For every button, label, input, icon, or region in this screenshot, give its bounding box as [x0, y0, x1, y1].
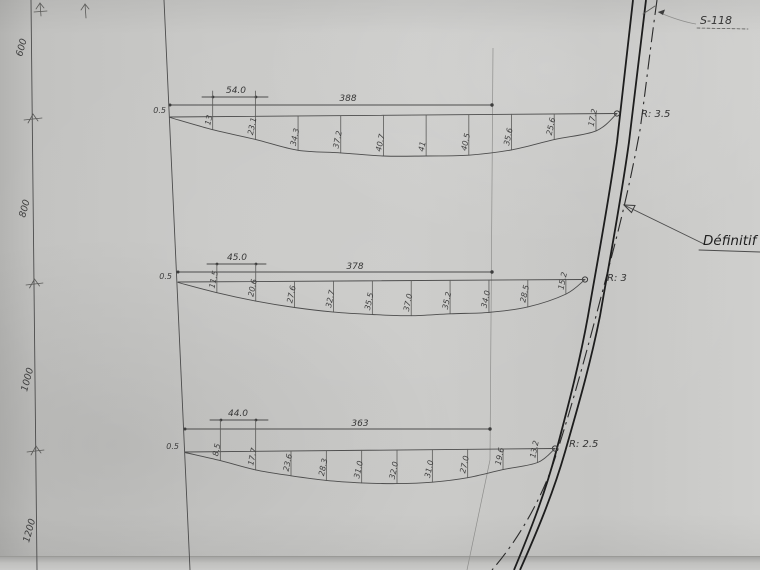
- edge-double-line: [514, 0, 646, 570]
- offset-value-label: 31.0: [423, 459, 436, 478]
- reference-leader-line: [658, 12, 696, 24]
- status-note: Définitif: [624, 205, 760, 252]
- status-note-underline: [699, 250, 760, 252]
- offset-value-label: 34.3: [289, 127, 302, 146]
- status-leader-line: [626, 206, 704, 244]
- span-dim-text-1: 388: [339, 94, 356, 104]
- offset-value-label: 27.6: [285, 285, 298, 304]
- spacing-dim-text-3: 44.0: [228, 409, 248, 419]
- sheet-reference-underline: [697, 28, 748, 29]
- datum-mark-1: [40, 3, 41, 16]
- offset-value-label: 31.0: [352, 460, 365, 479]
- span-dim-end-dot: [490, 270, 493, 273]
- offset-value-label: 37.2: [331, 130, 344, 149]
- offset-value-label: 32.7: [324, 288, 337, 308]
- offset-value-label: 17.7: [246, 446, 259, 466]
- offset-value-label: 20.6: [246, 278, 259, 297]
- ruler-label-600: 600: [14, 37, 29, 57]
- photo-of-drawing: 600 800 1000 1200 S-118: [0, 0, 760, 570]
- offset-value-label: 28.3: [317, 457, 330, 476]
- chord-line: [178, 280, 585, 283]
- ruler-tick-2: [26, 283, 43, 285]
- radius-text-2: R: 3: [607, 273, 627, 284]
- spacing-dim-text-1: 54.0: [226, 86, 246, 96]
- span-dim-end-dot: [488, 427, 491, 430]
- ruler-line: [31, 0, 37, 570]
- left-ruler: 600 800 1000 1200: [14, 0, 44, 570]
- spacing-dim-text-2: 45.0: [227, 253, 247, 263]
- offset-value-label: 11.5: [208, 270, 221, 289]
- sheet-reference-text: S-118: [700, 14, 732, 27]
- offset-value-label: 35.6: [502, 127, 515, 146]
- chord-line: [170, 114, 617, 118]
- status-note-text: Définitif: [703, 233, 759, 249]
- curve-group-1: 1323.134.337.240.74140.535.625.617.2: [170, 91, 617, 156]
- offset-value-label: 13.2: [528, 440, 541, 459]
- offset-value-label: 34.0: [480, 290, 493, 309]
- span-dim-text-2: 378: [346, 262, 363, 272]
- technical-drawing-svg: 600 800 1000 1200 S-118: [0, 0, 760, 570]
- offset-value-label: 32.0: [388, 461, 401, 480]
- span-dim-end-dot: [184, 428, 187, 431]
- start-offset-text-3: 0.5: [166, 442, 179, 451]
- status-leader-arrowhead: [624, 205, 635, 213]
- offset-value-label: 17.2: [587, 108, 600, 127]
- ruler-label-1200: 1200: [21, 518, 38, 544]
- offset-value-label: 19.6: [494, 447, 507, 466]
- offset-value-label: 15.2: [557, 271, 570, 290]
- datum-mark-1-bar: [34, 11, 47, 12]
- offset-value-label: 28.5: [518, 284, 531, 303]
- start-offset-text-2: 0.5: [159, 272, 172, 281]
- ruler-tick-1: [24, 118, 42, 120]
- sheet-reference-note: S-118: [643, 6, 748, 29]
- ruler-label-800: 800: [17, 198, 32, 218]
- edge-line-outer: [520, 0, 646, 570]
- offset-curves: 1323.134.337.240.74140.535.625.617.211.5…: [170, 91, 617, 484]
- start-offset-text-1: 0.5: [153, 106, 166, 115]
- offset-value-label: 27.0: [458, 455, 471, 474]
- span-dim-end-dot: [169, 104, 172, 107]
- span-dim-end-dot: [490, 103, 493, 106]
- span-dim-end-dot: [177, 271, 180, 274]
- ruler-label-1000: 1000: [19, 367, 36, 393]
- span-dim-text-3: 363: [351, 419, 368, 429]
- offset-value-label: 40.7: [374, 132, 387, 152]
- offset-value-label: 25.6: [545, 117, 558, 136]
- offset-value-label: 35.5: [363, 292, 376, 311]
- edge-line-inner: [514, 0, 633, 570]
- datum-marks: [34, 3, 89, 18]
- radius-text-3: R: 2.5: [569, 439, 598, 450]
- datum-mark-2: [85, 4, 86, 18]
- curve-group-3: 8.517.723.628.331.032.031.027.019.613.2: [185, 420, 555, 484]
- offset-value-label: 40.5: [459, 132, 472, 151]
- radius-text-1: R: 3.5: [641, 109, 670, 120]
- offset-value-label: 23.6: [282, 453, 295, 472]
- offset-value-label: 35.2: [441, 291, 454, 310]
- offset-value-label: 37.0: [402, 293, 415, 312]
- offset-value-label: 23.1: [246, 117, 259, 136]
- axis-dash-dot-line: [492, 0, 657, 570]
